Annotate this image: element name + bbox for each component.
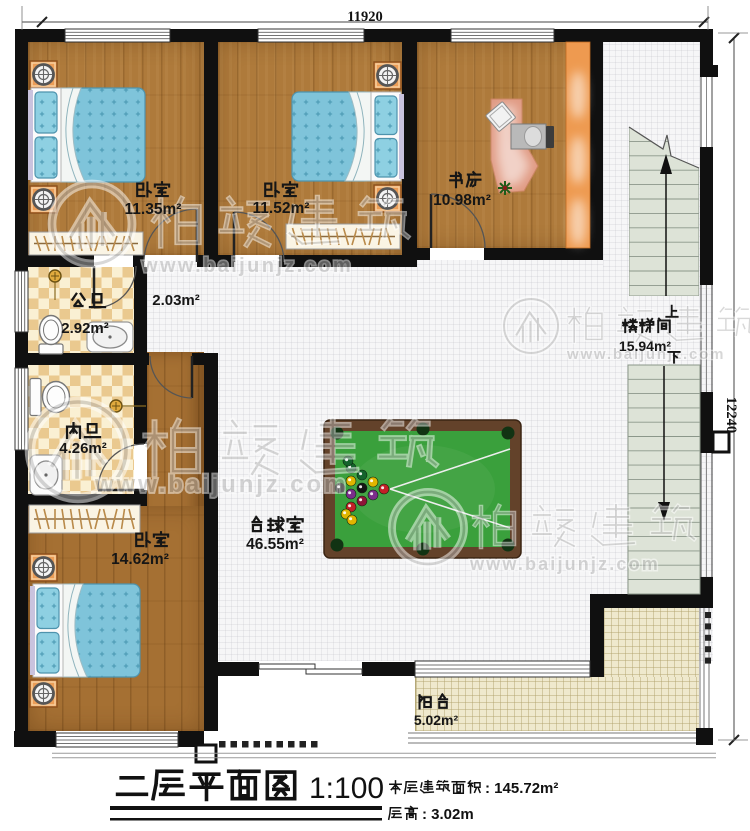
svg-text:12240: 12240: [723, 397, 739, 433]
svg-text:2.03m²: 2.03m²: [152, 292, 200, 309]
svg-text:: 145.72m²: : 145.72m²: [485, 780, 558, 797]
svg-text:15.94m²: 15.94m²: [619, 338, 671, 354]
svg-text:14.62m²: 14.62m²: [111, 551, 169, 568]
svg-text:: 3.02m: : 3.02m: [422, 806, 474, 823]
svg-text:11.52m²: 11.52m²: [253, 200, 310, 217]
svg-text:www.baijunjz.com: www.baijunjz.com: [141, 255, 353, 277]
svg-text:www.baijunjz.com: www.baijunjz.com: [469, 554, 660, 574]
svg-text:46.55m²: 46.55m²: [246, 536, 304, 553]
svg-text:2.92m²: 2.92m²: [61, 320, 109, 337]
svg-text:10.98m²: 10.98m²: [433, 192, 491, 209]
svg-text:www.baijunjz.com: www.baijunjz.com: [94, 471, 348, 498]
svg-text:11.35m²: 11.35m²: [125, 201, 182, 218]
svg-text:11920: 11920: [347, 9, 382, 25]
svg-text:5.02m²: 5.02m²: [414, 712, 459, 728]
svg-text:1:100: 1:100: [309, 772, 384, 805]
svg-text:4.26m²: 4.26m²: [59, 440, 107, 457]
